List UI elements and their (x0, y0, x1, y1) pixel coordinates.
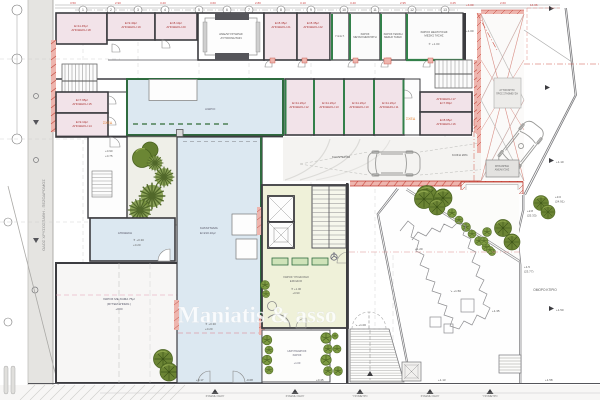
svg-text:4: 4 (164, 8, 166, 12)
svg-text:Ε=7.80μ²: Ε=7.80μ² (440, 101, 452, 105)
svg-text:+4.00: +4.00 (466, 3, 474, 7)
svg-text:(25.33): (25.33) (527, 214, 537, 218)
svg-text:13: 13 (443, 8, 447, 12)
svg-text:ΑΠΟΘΗΚΗ 11: ΑΠΟΘΗΚΗ 11 (379, 105, 398, 109)
svg-text:3.40: 3.40 (350, 1, 356, 5)
svg-text:ΑΝΕΛΚΥΣΗΣ: ΑΝΕΛΚΥΣΗΣ (495, 169, 510, 172)
svg-text:+0.20: +0.20 (205, 327, 213, 331)
svg-text:6: 6 (226, 8, 228, 12)
svg-text:3.10: 3.10 (300, 1, 306, 5)
svg-text:ΠΡΟΣ ΣΤΑΘΜΕΥΣΗ: ΠΡΟΣ ΣΤΑΘΜΕΥΣΗ (496, 93, 518, 96)
svg-text:ΑΠΟΘΗΚΗ 12: ΑΠΟΘΗΚΗ 12 (289, 105, 309, 109)
svg-text:ΑΠΟΘΗΚΗ 15: ΑΠΟΘΗΚΗ 15 (72, 102, 92, 106)
svg-text:ΟΔΟΣ ΧΡΥΣΟΣΠΑΘΗ - ΠΕΖΟΔΡΟΜΟΣ: ΟΔΟΣ ΧΡΥΣΟΣΠΑΘΗ - ΠΕΖΟΔΡΟΜΟΣ (41, 179, 46, 251)
svg-text:+1.00: +1.00 (294, 361, 301, 365)
svg-text:ΣΤΑΘΜΗ ΟΔΟΥ: ΣΤΑΘΜΗ ΟΔΟΥ (421, 394, 440, 398)
svg-text:ΣΧΕΔ: ΣΧΕΔ (406, 117, 416, 121)
svg-text:-0.08: -0.08 (246, 378, 253, 382)
svg-text:+2.8: +2.8 (527, 209, 533, 213)
svg-text:ΜΕΣΗΣ ΤΑΣΗΣ: ΜΕΣΗΣ ΤΑΣΗΣ (384, 35, 402, 39)
svg-text:+1.35: +1.35 (492, 309, 500, 313)
svg-text:ΧΩΡΟΣ: ΧΩΡΟΣ (292, 353, 301, 357)
svg-text:(24.91): (24.91) (555, 200, 565, 204)
svg-text:ΑΠΟΘΗΚΗ 10: ΑΠΟΘΗΚΗ 10 (349, 105, 369, 109)
svg-text:↘ +1.00: ↘ +1.00 (355, 323, 366, 327)
svg-text:ΣΤΑΘΜΗ ΟΔΟΥ: ΣΤΑΘΜΗ ΟΔΟΥ (286, 394, 305, 398)
svg-text:+1.58: +1.58 (545, 378, 553, 382)
svg-text:3.25: 3.25 (450, 1, 456, 5)
svg-text:ΜΕΤΑΣΧΗΜΑΤΙΣΤΗ: ΜΕΤΑΣΧΗΜΑΤΙΣΤΗ (353, 35, 376, 39)
svg-text:12: 12 (410, 8, 414, 12)
svg-text:✈ +1.00: ✈ +1.00 (429, 42, 440, 46)
svg-text:+1.00: +1.00 (466, 29, 474, 33)
svg-text:ΑΠΟΘΗΚΗ 18: ΑΠΟΘΗΚΗ 18 (71, 28, 91, 32)
svg-text:+0.90: +0.90 (105, 149, 113, 153)
svg-text:Ε=210.10μ²: Ε=210.10μ² (200, 231, 216, 235)
svg-text:+0.20: +0.20 (133, 243, 141, 247)
svg-text:ΑΠΟΘΗΚΗ 21: ΑΠΟΘΗΚΗ 21 (271, 25, 291, 29)
svg-text:+0.45: +0.45 (316, 378, 324, 382)
svg-text:2.60: 2.60 (500, 1, 506, 5)
svg-text:ΣΤΑΘΜΗ ΟΔΟΥ: ΣΤΑΘΜΗ ΟΔΟΥ (206, 394, 225, 398)
svg-text:ΑΠΟΘΗΚΗ 14: ΑΠΟΘΗΚΗ 14 (72, 124, 92, 128)
svg-text:ΑΠΟΘΗΚΗ 13: ΑΠΟΘΗΚΗ 13 (319, 105, 339, 109)
svg-text:2.80: 2.80 (255, 1, 261, 5)
svg-text:ΚΛΙΣΗ 20%: ΚΛΙΣΗ 20% (452, 153, 468, 157)
svg-text:+3.0: +3.0 (555, 195, 561, 199)
svg-text:8: 8 (280, 8, 282, 12)
svg-text:2.90: 2.90 (115, 1, 121, 5)
svg-text:ΗΜΙΥΠΑΙΘΡΙΟΣ: ΗΜΙΥΠΑΙΘΡΙΟΣ (288, 349, 307, 353)
svg-text:ΟΜΟΡΟ ΚΤΙΡΙΟ: ΟΜΟΡΟ ΚΤΙΡΙΟ (533, 288, 557, 292)
svg-text:2.95: 2.95 (400, 1, 406, 5)
svg-text:2: 2 (110, 8, 112, 12)
svg-text:3.20: 3.20 (160, 1, 166, 5)
svg-text:ΑΙΘΡΙΟ: ΑΙΘΡΙΟ (205, 107, 216, 111)
svg-text:ΥΨΟΜΕΤΡΟ: ΥΨΟΜΕΤΡΟ (482, 394, 497, 398)
svg-text:5: 5 (198, 8, 200, 12)
svg-text:ΑΠΟΘΗΚΗ: ΑΠΟΘΗΚΗ (118, 231, 132, 235)
svg-text:3.50: 3.50 (70, 1, 76, 5)
svg-text:+0.90: +0.90 (292, 291, 300, 295)
svg-text:ΣΧΕΔ: ΣΧΕΔ (103, 121, 113, 125)
svg-text:9: 9 (310, 8, 312, 12)
svg-text:✈ +0.30: ✈ +0.30 (133, 238, 144, 242)
svg-text:14.36: 14.36 (530, 3, 538, 7)
svg-text:ΑΠΟΘΗΚΗ 20: ΑΠΟΘΗΚΗ 20 (166, 25, 186, 29)
svg-text:(23.77): (23.77) (524, 270, 534, 274)
svg-text:3: 3 (137, 8, 139, 12)
svg-text:ΜΕΣΗΣ ΤΑΣΗΣ: ΜΕΣΗΣ ΤΑΣΗΣ (424, 34, 444, 38)
svg-text:+1.50: +1.50 (556, 308, 564, 312)
svg-text:Γ.Θ.Δ.Τ.: Γ.Θ.Δ.Τ. (335, 34, 344, 38)
svg-text:ΥΨΟΜΕΤΡΟ: ΥΨΟΜΕΤΡΟ (352, 394, 367, 398)
svg-text:1: 1 (82, 8, 84, 12)
svg-text:ΑΠΟΘΗΚΗ 16: ΑΠΟΘΗΚΗ 16 (436, 122, 456, 126)
svg-text:↘ +1.50: ↘ +1.50 (450, 289, 461, 293)
svg-text:Maniatis & asso: Maniatis & asso (178, 303, 336, 328)
svg-text:ΚΑΤΑΣΤΗΜΑ: ΚΑΤΑΣΤΗΜΑ (200, 226, 218, 230)
svg-text:+1.20: +1.20 (415, 247, 423, 251)
svg-text:+0.75: +0.75 (105, 154, 113, 158)
svg-text:ΑΥΤΟΚΙΝΗΤΩΝ: ΑΥΤΟΚΙΝΗΤΩΝ (220, 36, 241, 40)
svg-text:10: 10 (342, 8, 346, 12)
svg-text:+1.13: +1.13 (438, 378, 446, 382)
svg-text:+1.10: +1.10 (556, 160, 564, 164)
svg-text:+1.5: +1.5 (524, 265, 530, 269)
svg-text:7: 7 (248, 8, 250, 12)
svg-text:ΑΠΟΘΗΚΗ 19: ΑΠΟΘΗΚΗ 19 (121, 25, 141, 29)
svg-text:3.60: 3.60 (210, 1, 216, 5)
svg-text:11: 11 (373, 8, 377, 12)
svg-text:ΑΠΟΘΗΚΗ 22: ΑΠΟΘΗΚΗ 22 (303, 25, 323, 29)
svg-text:+0.17: +0.17 (196, 378, 204, 382)
svg-text:ΚΑΛΝΤΕΡΙΜΙ: ΚΑΛΝΤΕΡΙΜΙ (332, 155, 350, 159)
svg-text:ΕΙΣΟΔΟΣ: ΕΙΣΟΔΟΣ (290, 279, 302, 283)
